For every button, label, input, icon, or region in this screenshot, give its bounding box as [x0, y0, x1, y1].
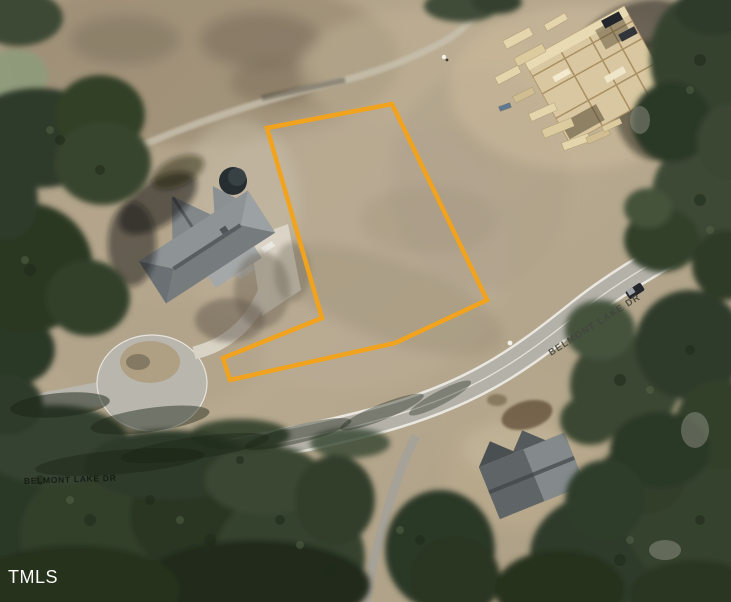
- mailbox-dot: [508, 341, 513, 346]
- aerial-photo: BELMONT LAKE DR BELMONT LAKE DR TMLS: [0, 0, 731, 602]
- path-marker-dot: [442, 55, 446, 59]
- bare-tree: [195, 298, 265, 342]
- aerial-map-container: BELMONT LAKE DR BELMONT LAKE DR TMLS: [0, 0, 731, 602]
- tmls-watermark: TMLS: [8, 567, 58, 587]
